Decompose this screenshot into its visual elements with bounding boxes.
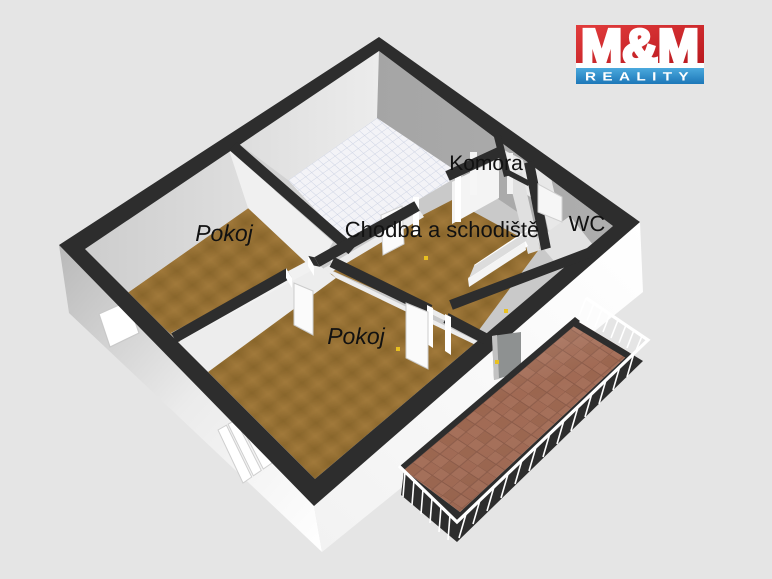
svg-text:Pokoj: Pokoj <box>195 220 253 246</box>
svg-text:Komora: Komora <box>449 152 523 175</box>
svg-text:Pokoj: Pokoj <box>327 323 385 349</box>
svg-text:M&M: M&M <box>581 19 699 75</box>
svg-text:Chodba a schodiště: Chodba a schodiště <box>345 217 539 242</box>
svg-text:WC: WC <box>569 211 606 236</box>
svg-text:REALITY: REALITY <box>585 70 695 84</box>
